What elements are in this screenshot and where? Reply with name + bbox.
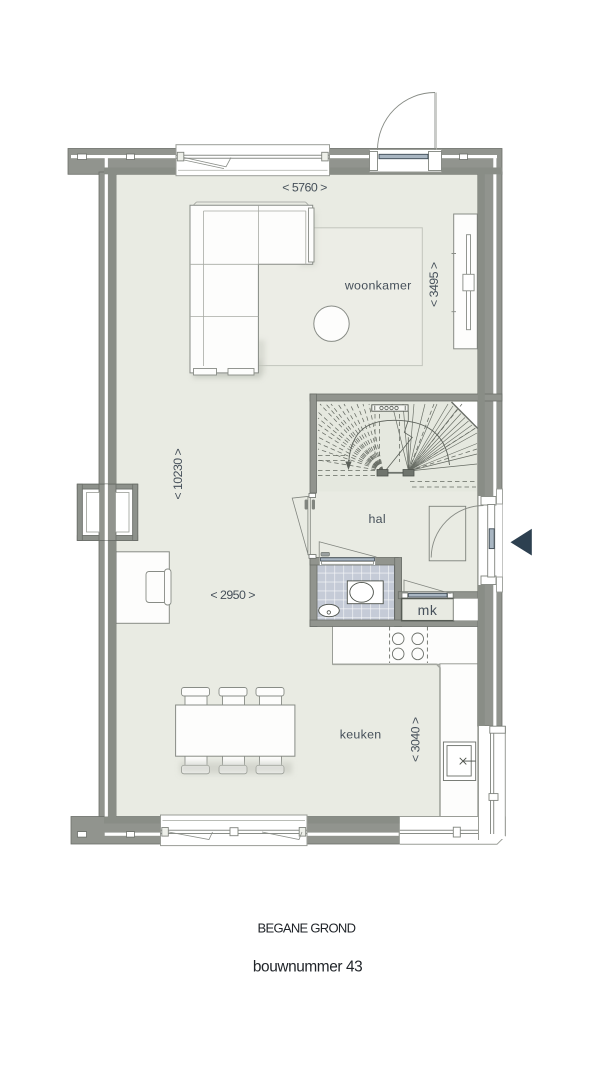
svg-text:bouwnummer 43: bouwnummer 43 <box>253 959 362 976</box>
svg-text:BEGANE GROND: BEGANE GROND <box>258 921 356 936</box>
svg-text:< 3040 >: < 3040 > <box>408 717 422 762</box>
svg-text:hal: hal <box>368 512 385 526</box>
svg-text:woonkamer: woonkamer <box>344 279 412 293</box>
svg-text:< 10230 >: < 10230 > <box>171 448 185 499</box>
svg-text:keuken: keuken <box>340 728 382 742</box>
svg-text:< 3495 >: < 3495 > <box>427 262 441 307</box>
svg-text:< 5760 >: < 5760 > <box>282 180 327 194</box>
svg-text:mk: mk <box>418 602 438 618</box>
svg-text:< 2950 >: < 2950 > <box>210 588 255 602</box>
